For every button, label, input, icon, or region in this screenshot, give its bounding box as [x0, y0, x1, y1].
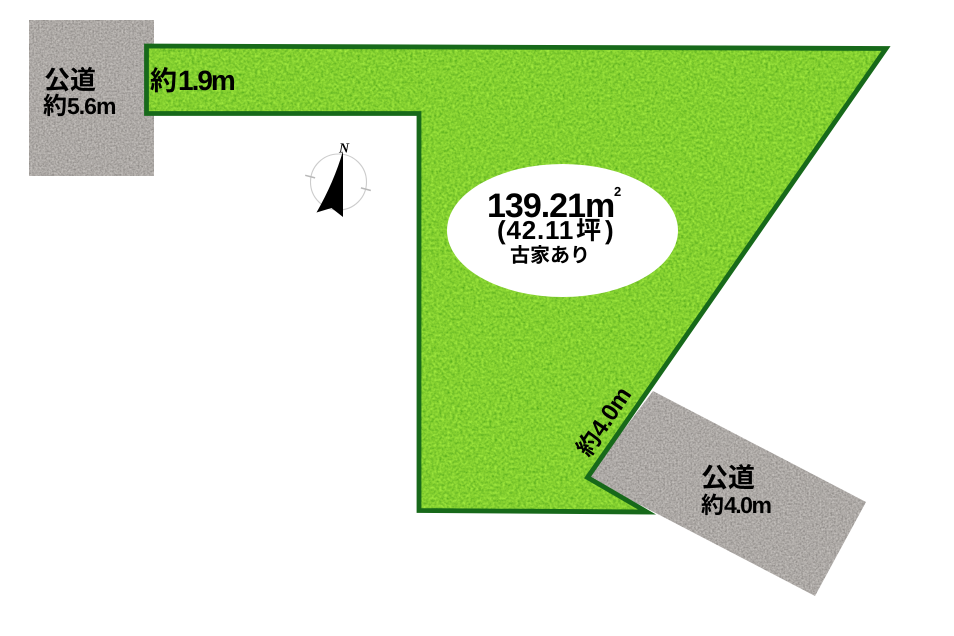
svg-text:): ) — [605, 215, 614, 245]
svg-text:(42.11: (42.11 — [497, 215, 574, 245]
svg-text:5.6m: 5.6m — [67, 93, 116, 119]
svg-text:2: 2 — [614, 184, 621, 199]
svg-text:N: N — [338, 142, 350, 157]
svg-text:1.9m: 1.9m — [178, 65, 235, 96]
svg-text:4.0m: 4.0m — [724, 492, 771, 518]
